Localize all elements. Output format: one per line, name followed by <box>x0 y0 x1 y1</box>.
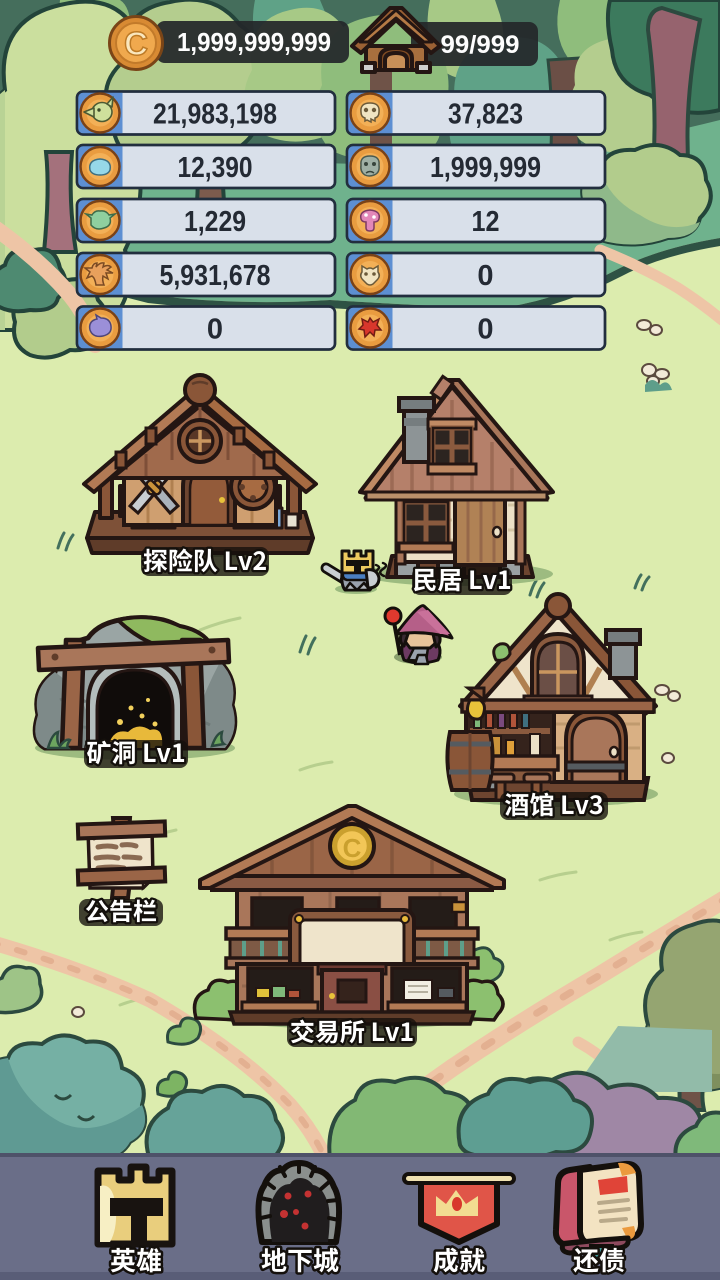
svg-text:1,999,999,999: 1,999,999,999 <box>177 27 331 57</box>
svg-text:1,229: 1,229 <box>184 206 246 238</box>
svg-text:0: 0 <box>477 314 493 346</box>
svg-text:99/999: 99/999 <box>441 31 520 59</box>
svg-text:37,823: 37,823 <box>448 99 523 131</box>
svg-text:1,999,999: 1,999,999 <box>430 152 541 184</box>
svg-text:12,390: 12,390 <box>178 152 253 184</box>
svg-text:0: 0 <box>207 314 223 346</box>
svg-text:21,983,198: 21,983,198 <box>153 99 277 131</box>
svg-text:5,931,678: 5,931,678 <box>160 260 271 292</box>
svg-text:12: 12 <box>472 206 500 238</box>
svg-text:C: C <box>343 833 362 863</box>
svg-text:C: C <box>124 25 148 62</box>
svg-text:0: 0 <box>477 260 493 292</box>
